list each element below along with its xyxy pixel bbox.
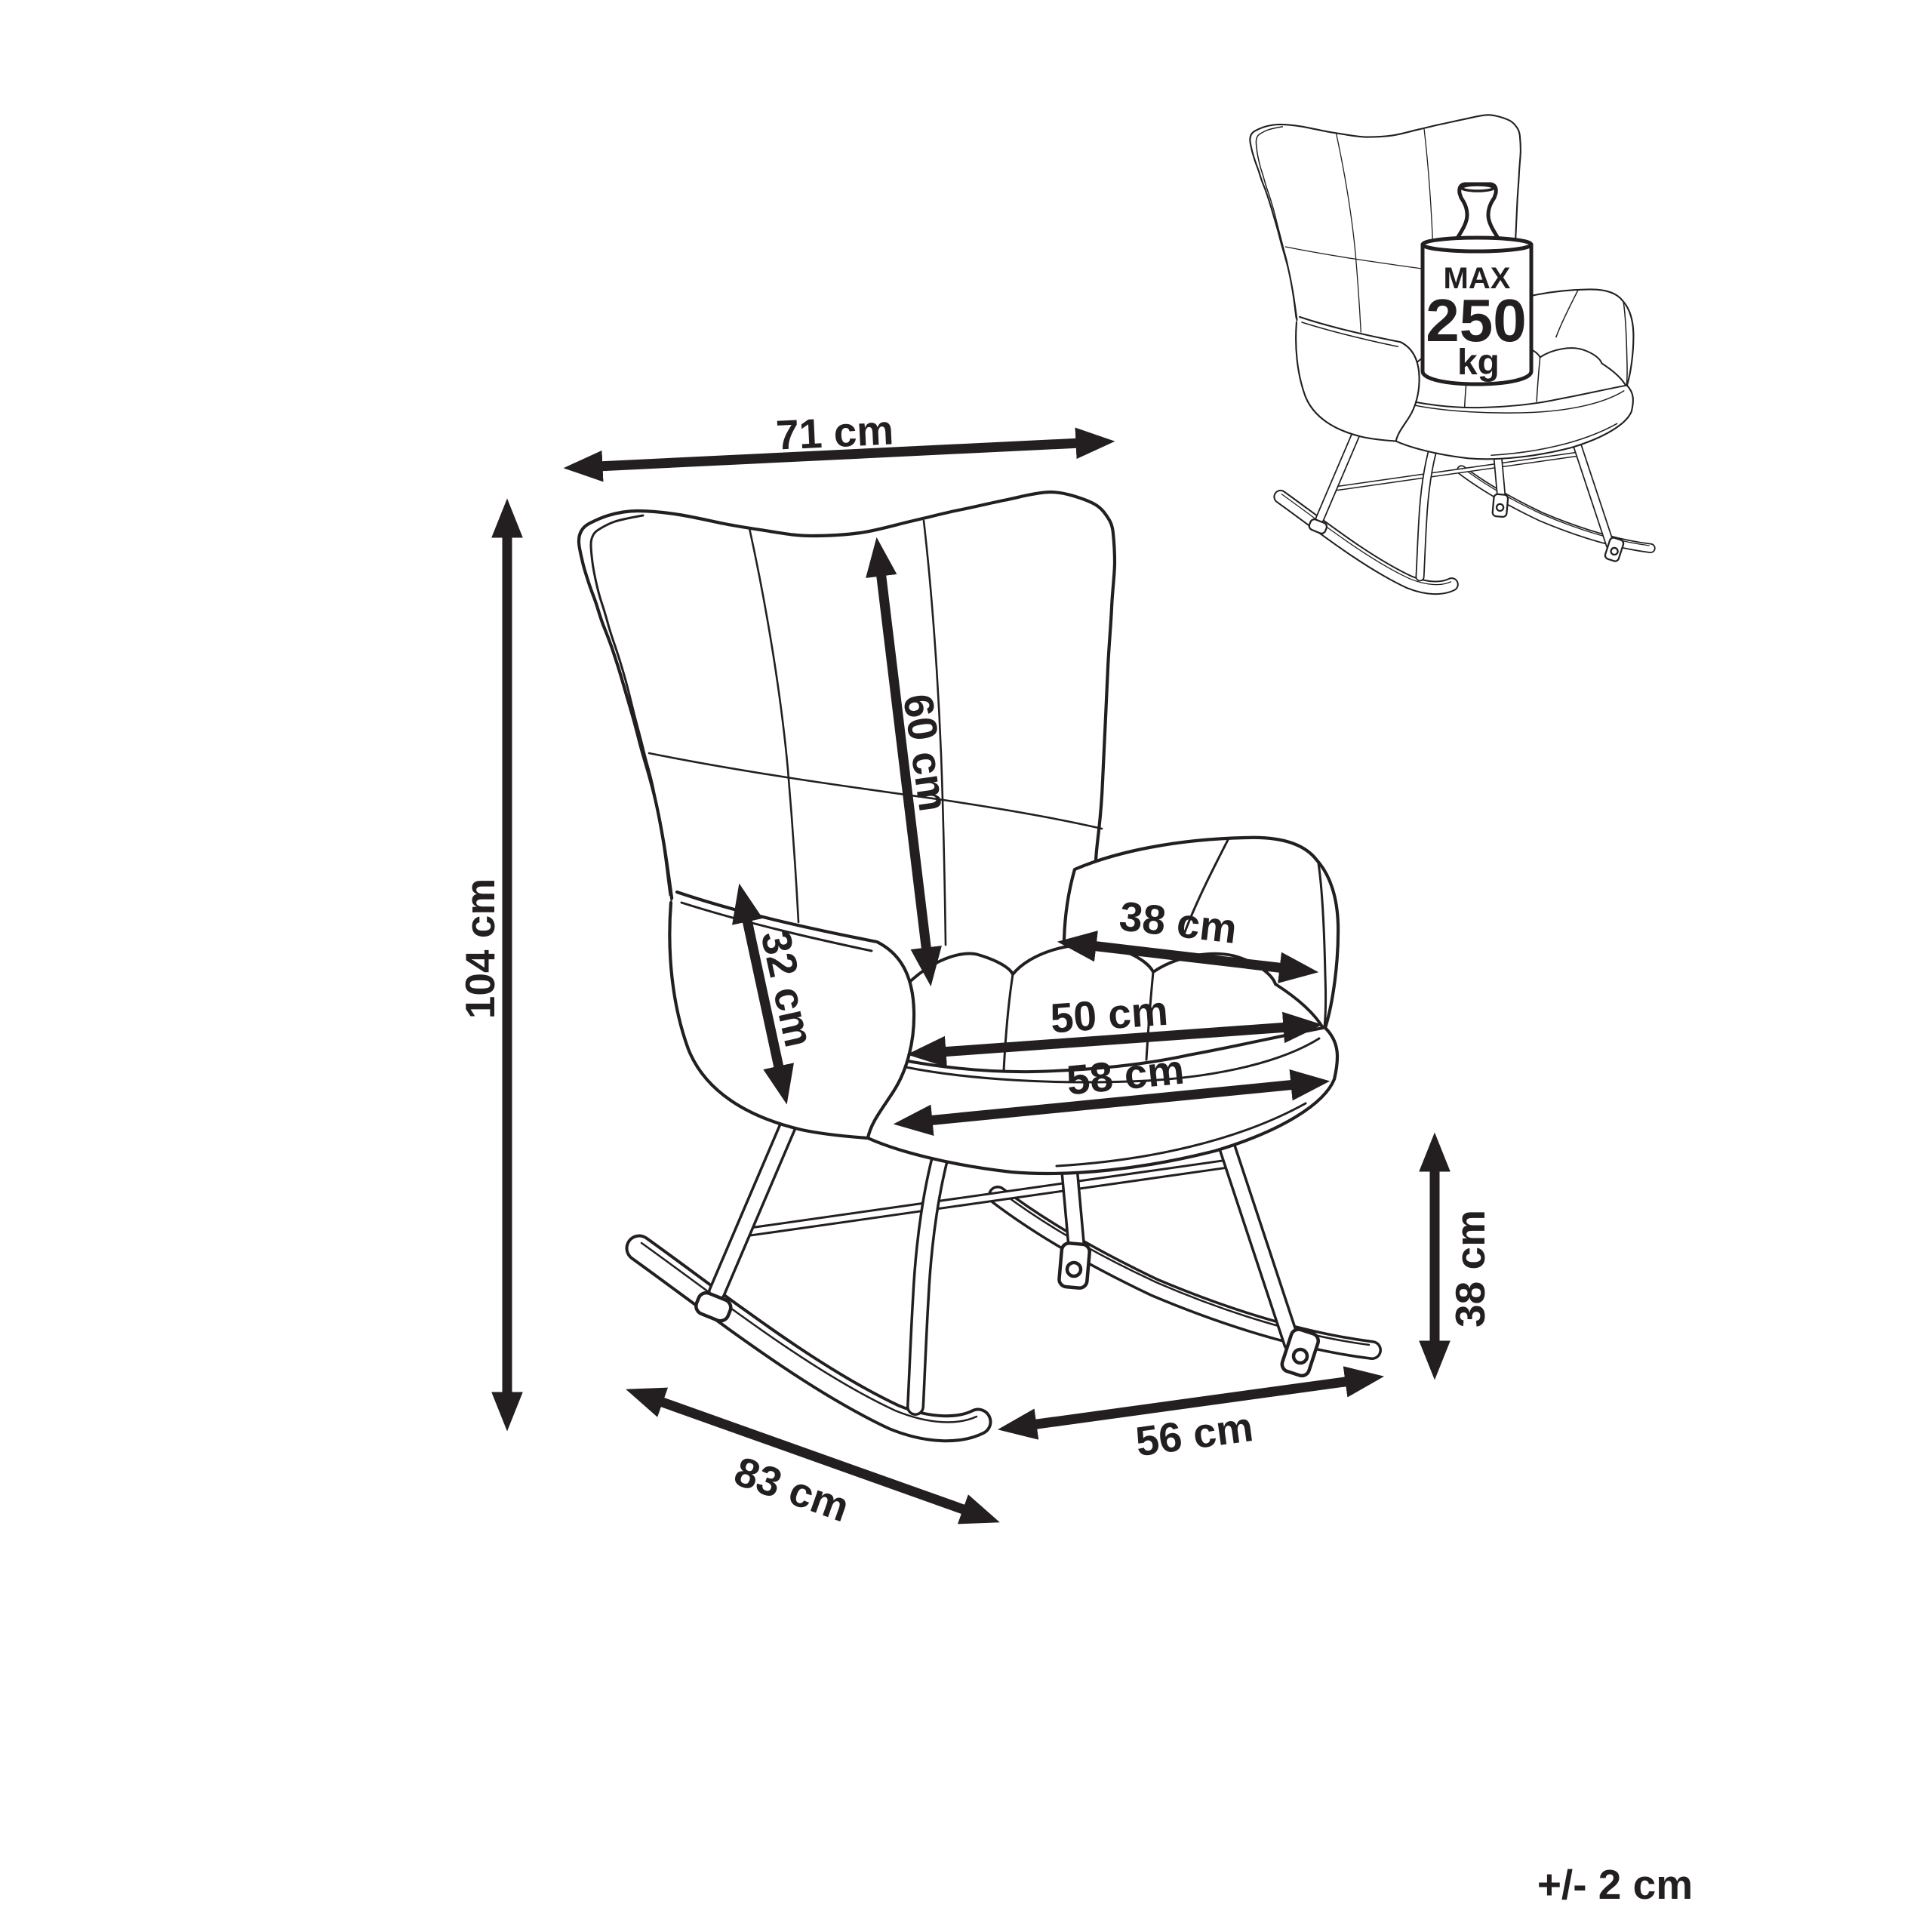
svg-text:38 cm: 38 cm [1447, 1210, 1494, 1327]
svg-text:+/- 2 cm: +/- 2 cm [1537, 1861, 1693, 1908]
svg-text:71 cm: 71 cm [775, 406, 895, 458]
svg-text:50 cm: 50 cm [1049, 987, 1170, 1042]
svg-text:104 cm: 104 cm [457, 878, 503, 1020]
svg-text:kg: kg [1457, 343, 1500, 383]
